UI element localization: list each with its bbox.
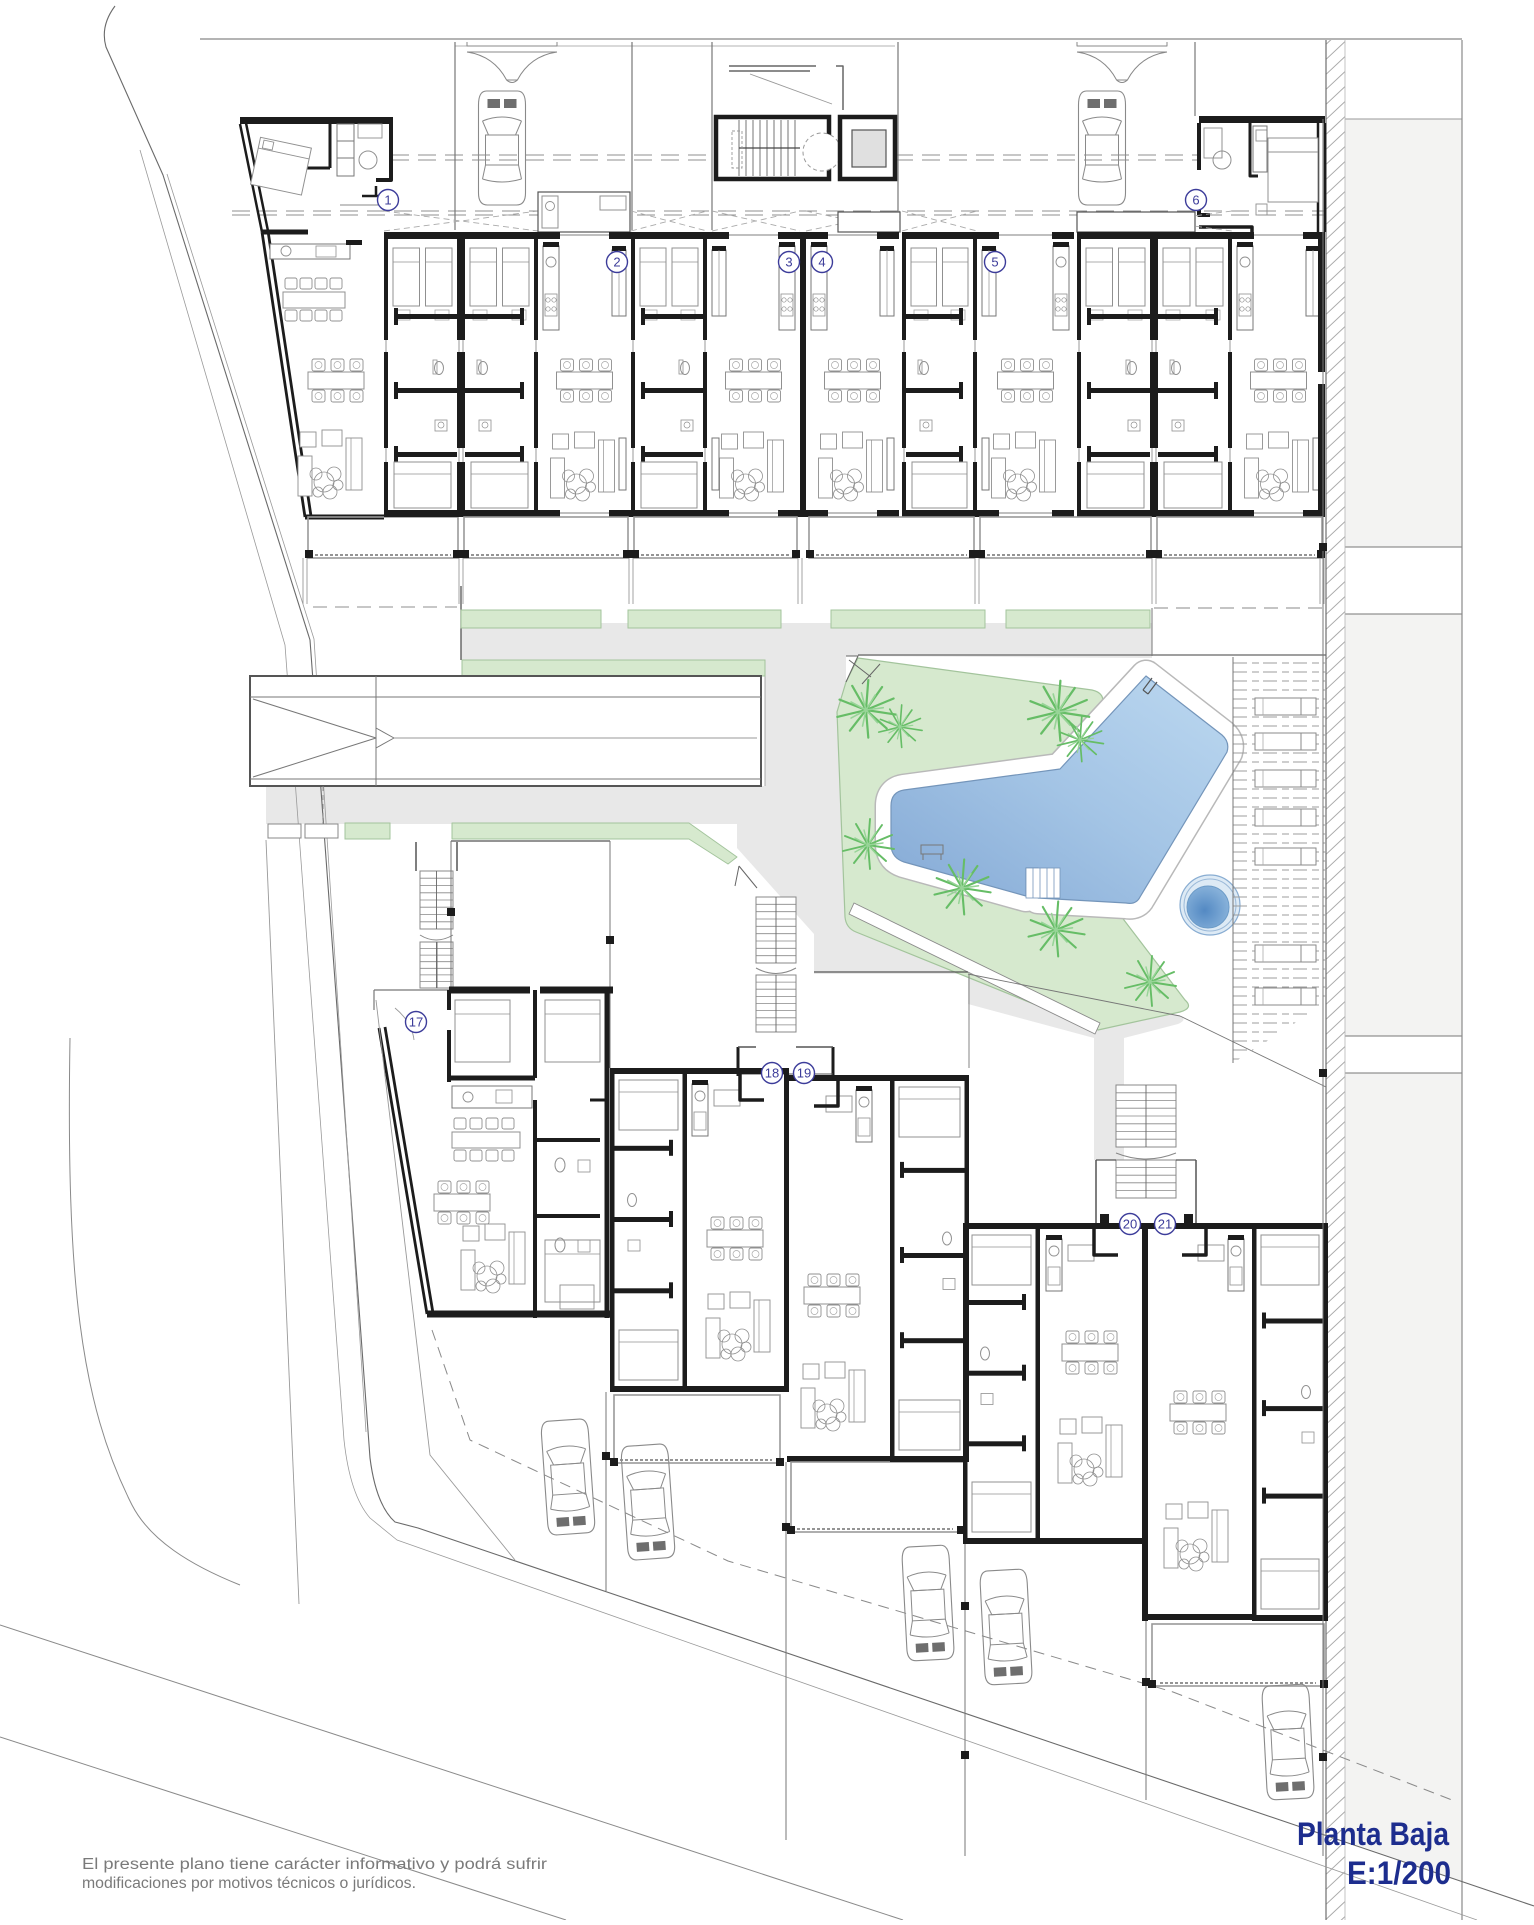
svg-text:1: 1 [384,193,391,208]
svg-text:18: 18 [765,1066,779,1081]
svg-text:17: 17 [409,1015,423,1030]
svg-text:3: 3 [785,255,792,270]
svg-text:Planta Baja: Planta Baja [1297,1816,1449,1852]
svg-text:modificaciones por motivos téc: modificaciones por motivos técnicos o ju… [82,1875,416,1892]
svg-text:21: 21 [1158,1217,1172,1232]
svg-text:2: 2 [613,255,620,270]
svg-text:19: 19 [797,1066,811,1081]
svg-text:4: 4 [818,255,825,270]
svg-text:El presente plano tiene caráct: El presente plano tiene carácter informa… [82,1856,547,1873]
svg-text:20: 20 [1123,1217,1137,1232]
svg-text:E:1/200: E:1/200 [1347,1855,1451,1891]
svg-text:5: 5 [991,255,998,270]
svg-text:6: 6 [1192,193,1199,208]
